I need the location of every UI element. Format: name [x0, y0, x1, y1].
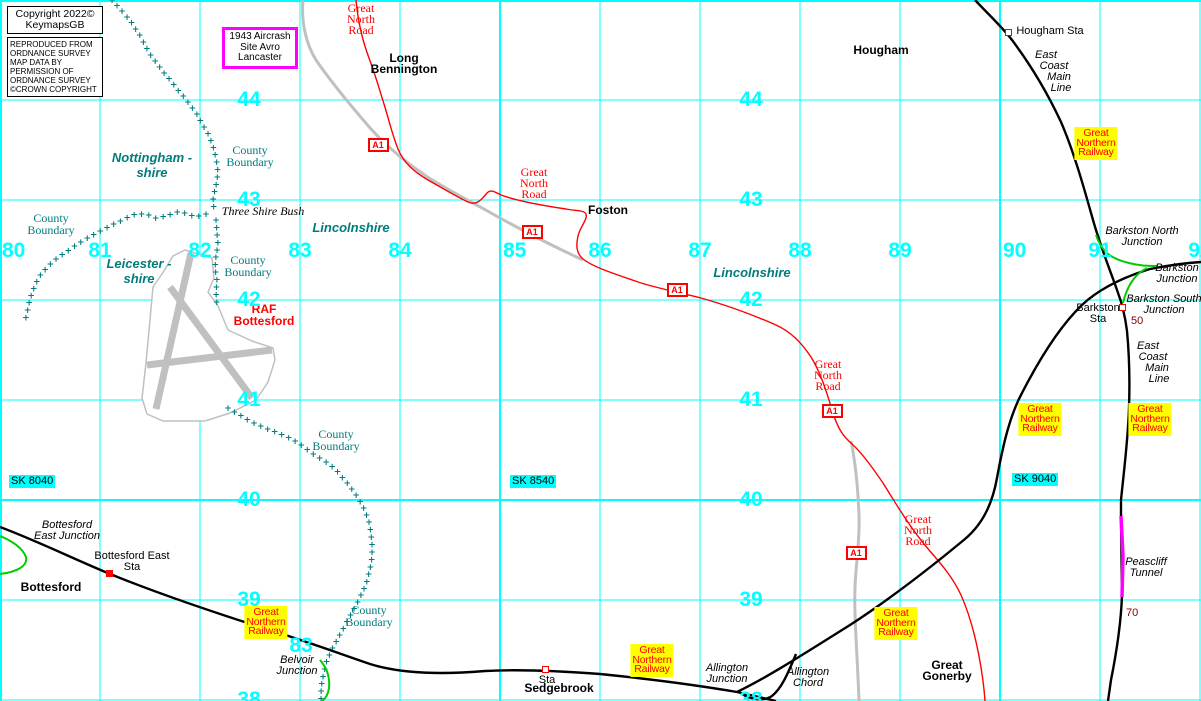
grid-number-83-south: 83: [289, 636, 312, 656]
milepost-70: 70: [1126, 608, 1138, 619]
road-label-great-north-road-2: GreatNorthRoad: [520, 167, 548, 200]
grid-number-easting-90: 90: [1003, 241, 1026, 261]
grid-number-northing-43-line: 43: [237, 190, 260, 210]
grid-square-ref-sk-8540: SK 8540: [510, 475, 556, 488]
a1-road-badge: A1: [667, 283, 688, 297]
sedgebrook-station-marker: [542, 666, 549, 673]
great-northern-railway-label: GreatNorthernRailway: [630, 644, 673, 677]
grid-number-easting-92-line: 92: [1188, 241, 1201, 261]
station-label-bottesford-east-sta-line: Bottesford East: [94, 551, 169, 562]
great-northern-railway-label-line: Railway: [1076, 148, 1115, 158]
aircrash-site-box: 1943 Aircrash Site Avro Lancaster: [222, 27, 298, 69]
grid-number-easting-83: 83: [288, 241, 311, 261]
county-label-lincolnshire-2: Lincolnshire: [713, 265, 790, 280]
barkston-station-marker: [1119, 304, 1126, 311]
grid-number-northing-44: 44: [237, 90, 260, 110]
grid-number-easting-87-line: 87: [688, 241, 711, 261]
county-label-leicestershire: Leicester -shire: [106, 256, 171, 286]
junction-label-bottesford-east: BottesfordEast Junction: [34, 520, 100, 542]
place-bottesford-line: Bottesford: [21, 582, 82, 593]
grid-number-northing-44-line: 44: [739, 90, 762, 110]
junction-label-barkston-south: Barkston SouthJunction: [1126, 294, 1201, 316]
grid-number-easting-91: 91: [1088, 241, 1111, 261]
grid-number-northing-44: 44: [739, 90, 762, 110]
bottesford-east-station-marker: [106, 570, 113, 577]
place-hougham: Hougham: [853, 45, 908, 56]
grid-number-northing-41-line: 41: [237, 390, 260, 410]
great-northern-railway-label: GreatNorthernRailway: [1018, 403, 1061, 436]
place-sedgebrook: Sedgebrook: [524, 683, 593, 694]
place-long-bennington: LongBennington: [371, 53, 438, 74]
grid-number-northing-39-line: 39: [739, 590, 762, 610]
grid-number-easting-86: 86: [588, 241, 611, 261]
great-northern-railway-label-line: Railway: [246, 627, 285, 637]
great-northern-railway-label: GreatNorthernRailway: [1128, 403, 1171, 436]
great-northern-railway-label: GreatNorthernRailway: [244, 606, 287, 639]
county-boundary-label-4: CountyBoundary: [312, 429, 359, 452]
grid-number-easting-89-line: 89: [888, 241, 911, 261]
junction-label-allington-line: Junction: [706, 674, 748, 685]
station-label-barkston-sta: BarkstonSta: [1076, 303, 1119, 324]
station-label-barkston-sta-line: Sta: [1076, 314, 1119, 325]
label-peascliff-tunnel: PeascliffTunnel: [1125, 557, 1167, 579]
county-boundary-label-3-line: Boundary: [224, 267, 271, 279]
grid-number-easting-87: 87: [688, 241, 711, 261]
milepost-50: 50: [1131, 316, 1143, 327]
map-labels-layer: GreatNorthRoadGreatNorthRoadGreatNorthRo…: [0, 0, 1201, 701]
grid-number-northing-38-line: 38: [739, 690, 762, 701]
county-boundary-label-4-line: Boundary: [312, 441, 359, 453]
place-bottesford: Bottesford: [21, 582, 82, 593]
road-label-great-north-road-2-line: Road: [520, 189, 548, 200]
grid-number-northing-43: 43: [237, 190, 260, 210]
grid-number-easting-80-line: 80: [2, 241, 25, 261]
junction-label-belvoir-line: Junction: [277, 666, 318, 677]
place-sedgebrook-line: Sedgebrook: [524, 683, 593, 694]
county-label-nottinghamshire: Nottingham -shire: [112, 150, 192, 180]
grid-number-northing-43: 43: [739, 190, 762, 210]
a1-road-badge: A1: [822, 404, 843, 418]
map-canvas: ++++++++++++++++++++++++++++++++++++++++…: [0, 0, 1201, 701]
aircrash-line: 1943: [229, 31, 251, 42]
place-great-gonerby: GreatGonerby: [922, 660, 971, 681]
grid-number-easting-81-line: 81: [88, 241, 111, 261]
grid-number-easting-88: 88: [788, 241, 811, 261]
place-foston-line: Foston: [588, 205, 628, 216]
grid-number-easting-91-line: 91: [1088, 241, 1111, 261]
county-label-leicestershire-line: shire: [106, 271, 171, 286]
grid-number-easting-92: 92: [1188, 241, 1201, 261]
grid-number-northing-42: 42: [237, 290, 260, 310]
county-label-lincolnshire-1: Lincolnshire: [312, 220, 389, 235]
milepost-70-line: 70: [1126, 608, 1138, 619]
grid-number-easting-85: 85: [503, 241, 526, 261]
great-northern-railway-label-line: Railway: [1130, 424, 1169, 434]
a1-road-badge: A1: [368, 138, 389, 152]
label-allington-chord: AllingtonChord: [787, 667, 829, 689]
county-label-lincolnshire-1-line: Lincolnshire: [312, 220, 389, 235]
railway-label-ecml-north-4: Line: [1051, 83, 1072, 94]
grid-number-northing-40-line: 40: [237, 490, 260, 510]
station-label-sedgebrook-sta-line: Sta: [539, 675, 556, 686]
aircrash-line: Lancaster: [238, 52, 282, 63]
os-attribution-line: PERMISSION OF: [10, 67, 74, 76]
county-boundary-label-5: CountyBoundary: [345, 605, 392, 628]
grid-number-northing-43-line: 43: [739, 190, 762, 210]
county-label-nottinghamshire-line: Nottingham -: [112, 150, 192, 165]
county-label-lincolnshire-2-line: Lincolnshire: [713, 265, 790, 280]
grid-number-easting-82: 82: [188, 241, 211, 261]
place-great-gonerby-line: Gonerby: [922, 671, 971, 682]
county-boundary-label-3: CountyBoundary: [224, 255, 271, 278]
grid-square-ref-sk-9040: SK 9040: [1012, 473, 1058, 486]
grid-number-easting-84: 84: [388, 241, 411, 261]
os-attribution-line: ©CROWN COPYRIGHT: [10, 85, 97, 94]
os-attribution-box: REPRODUCED FROM ORDNANCE SURVEY MAP DATA…: [7, 37, 103, 97]
os-attribution-line: MAP DATA BY: [10, 58, 62, 67]
grid-number-northing-38: 38: [739, 690, 762, 701]
label-three-shire-bush-line: Three Shire Bush: [222, 206, 304, 217]
county-boundary-label-1-line: Boundary: [226, 157, 273, 169]
great-northern-railway-label: GreatNorthernRailway: [874, 607, 917, 640]
os-attribution-line: ORDNANCE SURVEY: [10, 49, 91, 58]
county-boundary-label-1: CountyBoundary: [226, 145, 273, 168]
grid-number-easting-86-line: 86: [588, 241, 611, 261]
aircrash-line: Avro: [260, 42, 280, 53]
grid-number-easting-90-line: 90: [1003, 241, 1026, 261]
road-label-great-north-road-3: GreatNorthRoad: [814, 359, 842, 392]
grid-number-easting-80: 80: [2, 241, 25, 261]
railway-label-ecml-south-4: Line: [1149, 374, 1170, 385]
junction-label-allington: AllingtonJunction: [706, 663, 748, 685]
road-label-great-north-road-1-line: Road: [347, 25, 375, 36]
junction-label-bottesford-east-line: East Junction: [34, 531, 100, 542]
grid-number-northing-41: 41: [237, 390, 260, 410]
great-northern-railway-label-line: Railway: [632, 665, 671, 675]
grid-number-northing-39: 39: [739, 590, 762, 610]
railway-label-ecml-north-4-line: Line: [1051, 83, 1072, 94]
copyright-line: KeymapsGB: [26, 19, 85, 31]
grid-number-northing-41-line: 41: [739, 390, 762, 410]
junction-label-barkston-north-line: Junction: [1105, 237, 1178, 248]
grid-number-easting-89: 89: [888, 241, 911, 261]
junction-label-belvoir: BelvoirJunction: [277, 655, 318, 677]
grid-square-ref-sk-8040: SK 8040: [9, 475, 55, 488]
great-northern-railway-label: GreatNorthernRailway: [1074, 127, 1117, 160]
county-label-nottinghamshire-line: shire: [112, 165, 192, 180]
grid-number-easting-81: 81: [88, 241, 111, 261]
junction-label-barkston: BarkstonJunction: [1155, 263, 1198, 285]
road-label-great-north-road-4-line: Road: [904, 536, 932, 547]
county-boundary-label-2: CountyBoundary: [27, 213, 74, 236]
road-label-great-north-road-3-line: Road: [814, 381, 842, 392]
grid-number-northing-40-line: 40: [739, 490, 762, 510]
county-boundary-label-5-line: Boundary: [345, 617, 392, 629]
grid-number-northing-41: 41: [739, 390, 762, 410]
station-label-sedgebrook-sta: Sta: [539, 675, 556, 686]
county-label-leicestershire-line: Leicester -: [106, 256, 171, 271]
os-attribution-line: ORDNANCE SURVEY: [10, 76, 91, 85]
milepost-50-line: 50: [1131, 316, 1143, 327]
great-northern-railway-label-line: Railway: [876, 628, 915, 638]
os-attribution-line: REPRODUCED FROM: [10, 40, 93, 49]
hougham-station-marker: [1005, 29, 1012, 36]
place-long-bennington-line: Bennington: [371, 64, 438, 75]
place-foston: Foston: [588, 205, 628, 216]
grid-number-easting-85-line: 85: [503, 241, 526, 261]
label-allington-chord-line: Chord: [787, 678, 829, 689]
label-three-shire-bush: Three Shire Bush: [222, 206, 304, 217]
grid-number-easting-88-line: 88: [788, 241, 811, 261]
label-peascliff-tunnel-line: Tunnel: [1125, 568, 1167, 579]
grid-number-northing-40: 40: [739, 490, 762, 510]
road-label-great-north-road-1: GreatNorthRoad: [347, 3, 375, 36]
station-label-hougham-sta: Hougham Sta: [1016, 26, 1083, 37]
junction-label-barkston-line: Junction: [1155, 274, 1198, 285]
grid-number-northing-42-line: 42: [237, 290, 260, 310]
grid-number-northing-42-line: 42: [739, 290, 762, 310]
station-label-hougham-sta-line: Hougham Sta: [1016, 26, 1083, 37]
grid-number-easting-84-line: 84: [388, 241, 411, 261]
grid-number-northing-40: 40: [237, 490, 260, 510]
grid-number-northing-38: 38: [237, 690, 260, 701]
a1-road-badge: A1: [522, 225, 543, 239]
junction-label-barkston-north: Barkston NorthJunction: [1105, 226, 1178, 248]
a1-road-badge: A1: [846, 546, 867, 560]
grid-number-northing-42: 42: [739, 290, 762, 310]
grid-number-83-south-line: 83: [289, 636, 312, 656]
station-label-barkston-sta-line: Barkston: [1076, 303, 1119, 314]
place-raf-bottesford-line: Bottesford: [234, 316, 295, 328]
copyright-box: Copyright 2022© KeymapsGB: [7, 6, 103, 34]
place-hougham-line: Hougham: [853, 45, 908, 56]
road-label-great-north-road-4: GreatNorthRoad: [904, 514, 932, 547]
grid-number-northing-44-line: 44: [237, 90, 260, 110]
grid-number-northing-38-line: 38: [237, 690, 260, 701]
station-label-bottesford-east-sta: Bottesford EastSta: [94, 551, 169, 572]
railway-label-ecml-south-4-line: Line: [1149, 374, 1170, 385]
grid-number-easting-82-line: 82: [188, 241, 211, 261]
county-boundary-label-2-line: Boundary: [27, 225, 74, 237]
great-northern-railway-label-line: Railway: [1020, 424, 1059, 434]
grid-number-easting-83-line: 83: [288, 241, 311, 261]
